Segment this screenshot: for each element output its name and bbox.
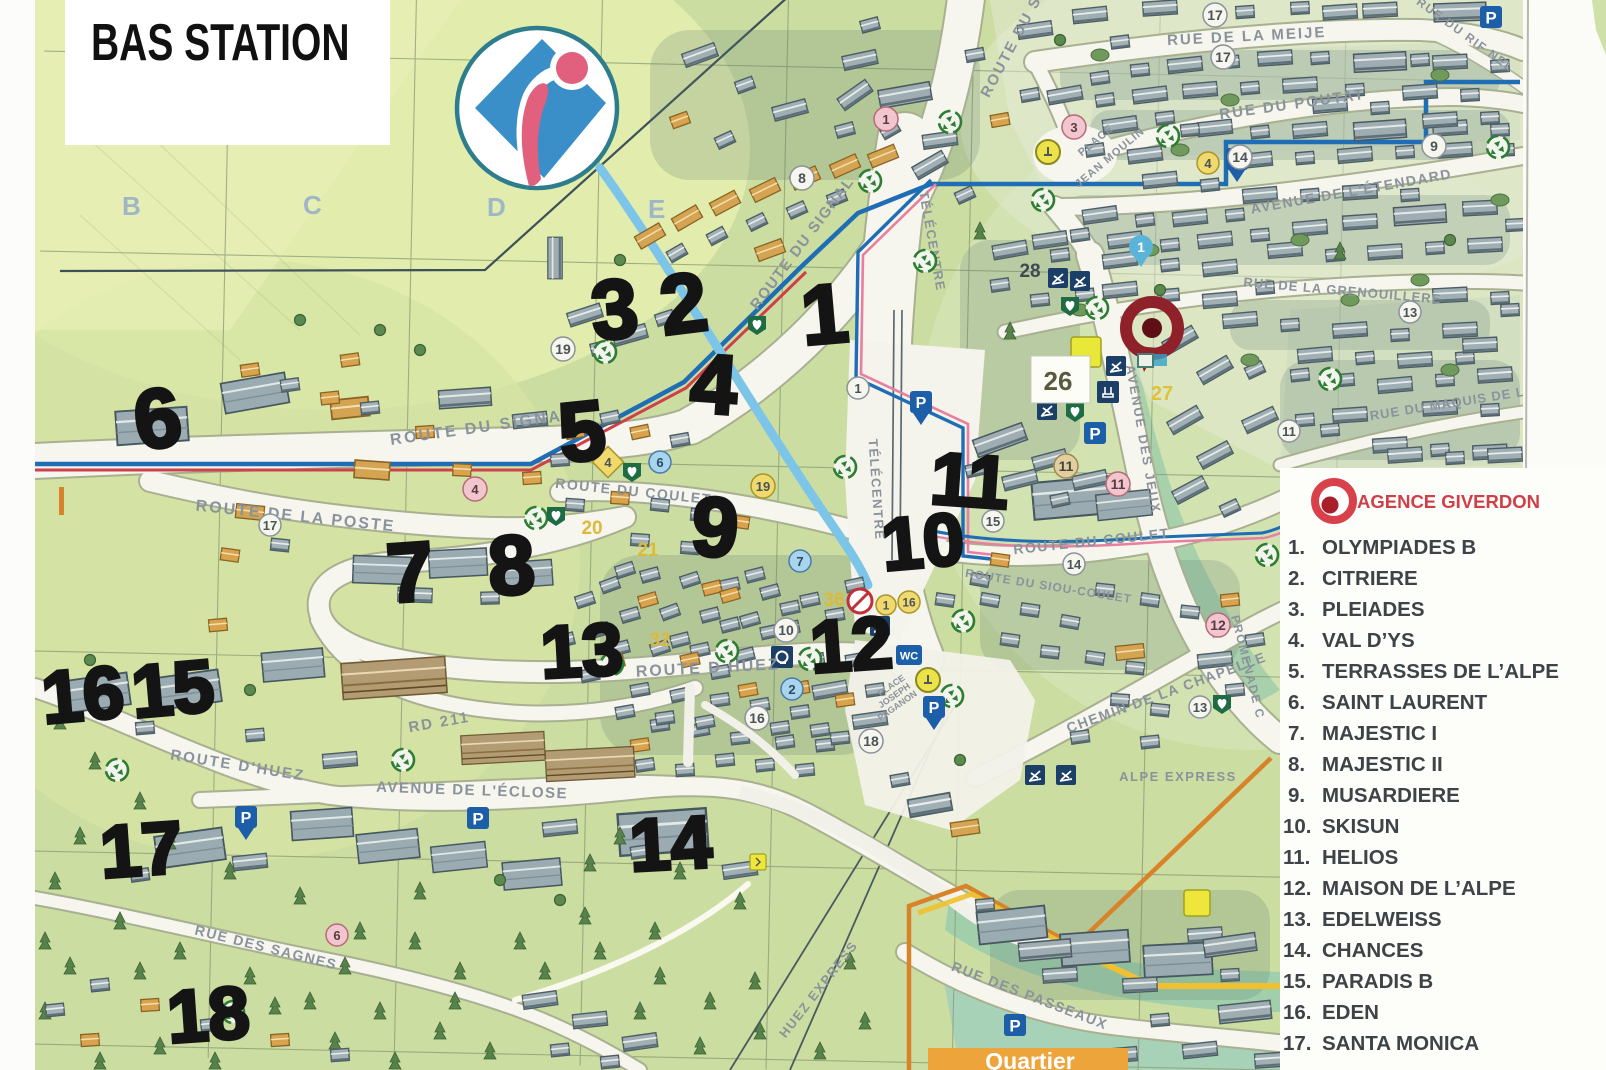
svg-text:AGENCE GIVERDON: AGENCE GIVERDON [1357, 491, 1540, 512]
svg-text:7: 7 [383, 524, 436, 621]
svg-text:4: 4 [1204, 156, 1212, 171]
svg-text:19: 19 [555, 341, 571, 357]
svg-text:3: 3 [587, 260, 642, 358]
svg-text:11: 11 [1282, 424, 1296, 439]
svg-text:8.: 8. [1288, 753, 1305, 776]
svg-text:PARADIS B: PARADIS B [1322, 970, 1433, 993]
svg-text:3: 3 [1070, 120, 1077, 135]
svg-text:1: 1 [797, 265, 852, 363]
svg-text:7: 7 [796, 554, 803, 569]
svg-text:VAL D’YS: VAL D’YS [1322, 629, 1415, 652]
svg-text:14: 14 [627, 800, 714, 887]
svg-text:19: 19 [756, 479, 770, 494]
svg-text:16.: 16. [1283, 1001, 1312, 1024]
svg-text:11: 11 [928, 436, 1012, 524]
svg-text:21: 21 [637, 540, 659, 561]
svg-text:C: C [303, 190, 322, 220]
svg-text:17: 17 [97, 805, 185, 894]
svg-text:1: 1 [1137, 239, 1145, 255]
svg-text:8: 8 [486, 517, 538, 613]
svg-text:CHANCES: CHANCES [1322, 939, 1423, 962]
svg-text:14: 14 [1232, 149, 1248, 165]
svg-text:18: 18 [863, 733, 879, 749]
svg-text:17: 17 [263, 518, 277, 533]
svg-text:MAISON DE L’ALPE: MAISON DE L’ALPE [1322, 877, 1516, 900]
svg-text:13: 13 [1403, 305, 1417, 320]
svg-text:14.: 14. [1283, 939, 1312, 962]
svg-text:14: 14 [1067, 557, 1082, 572]
svg-text:32: 32 [649, 630, 670, 651]
svg-text:15.: 15. [1283, 970, 1312, 993]
svg-text:OLYMPIADES B: OLYMPIADES B [1322, 536, 1476, 559]
svg-text:6: 6 [656, 455, 663, 470]
svg-text:WC: WC [900, 651, 918, 663]
svg-text:12: 12 [1210, 617, 1226, 633]
svg-text:11.: 11. [1283, 846, 1310, 869]
svg-text:2.: 2. [1288, 567, 1305, 590]
svg-text:18: 18 [164, 970, 252, 1059]
svg-text:HELIOS: HELIOS [1322, 846, 1398, 869]
svg-text:SANTA MONICA: SANTA MONICA [1322, 1032, 1479, 1055]
svg-text:ALPE EXPRESS: ALPE EXPRESS [1119, 769, 1237, 784]
svg-text:12.: 12. [1283, 877, 1312, 900]
svg-text:13: 13 [538, 607, 625, 694]
svg-text:10: 10 [778, 622, 794, 638]
svg-text:20: 20 [581, 518, 602, 539]
svg-text:4: 4 [687, 336, 740, 433]
svg-text:9.: 9. [1288, 784, 1305, 807]
svg-text:5: 5 [554, 382, 610, 480]
svg-text:5.: 5. [1288, 660, 1305, 683]
svg-text:D: D [487, 192, 506, 222]
svg-text:MAJESTIC I: MAJESTIC I [1322, 722, 1437, 745]
svg-text:17.: 17. [1283, 1032, 1312, 1055]
svg-text:SKISUN: SKISUN [1322, 815, 1399, 838]
svg-text:CITRIERE: CITRIERE [1322, 567, 1418, 590]
svg-text:4: 4 [471, 482, 479, 497]
svg-text:TERRASSES DE L’ALPE: TERRASSES DE L’ALPE [1322, 660, 1559, 683]
svg-text:13: 13 [1193, 700, 1207, 715]
svg-text:16: 16 [902, 596, 916, 610]
svg-text:6: 6 [333, 928, 340, 943]
svg-text:15: 15 [128, 644, 217, 734]
svg-text:6.: 6. [1288, 691, 1305, 714]
svg-text:11: 11 [1059, 458, 1074, 474]
svg-text:16: 16 [749, 710, 765, 726]
svg-text:EDELWEISS: EDELWEISS [1322, 908, 1442, 931]
svg-text:1.: 1. [1288, 536, 1305, 559]
svg-text:EDEN: EDEN [1322, 1001, 1379, 1024]
svg-text:8: 8 [798, 170, 806, 186]
svg-text:PLEIADES: PLEIADES [1322, 598, 1425, 621]
svg-text:17: 17 [1215, 49, 1231, 65]
svg-text:B: B [122, 191, 141, 221]
svg-text:MUSARDIERE: MUSARDIERE [1322, 784, 1460, 807]
svg-text:1: 1 [854, 381, 861, 396]
svg-text:11: 11 [1111, 476, 1126, 492]
svg-text:9: 9 [1430, 138, 1438, 154]
svg-text:Quartier: Quartier [985, 1048, 1075, 1070]
svg-text:28: 28 [1019, 261, 1040, 282]
svg-text:7.: 7. [1288, 722, 1305, 745]
svg-text:4.: 4. [1288, 629, 1305, 652]
svg-text:BAS STATION: BAS STATION [91, 12, 349, 71]
svg-text:27: 27 [1151, 383, 1173, 405]
svg-text:26: 26 [1044, 366, 1073, 396]
svg-text:2: 2 [788, 682, 795, 697]
svg-text:16: 16 [38, 650, 127, 740]
svg-text:3.: 3. [1288, 598, 1305, 621]
svg-text:SAINT LAURENT: SAINT LAURENT [1322, 691, 1488, 714]
svg-text:MAJESTIC II: MAJESTIC II [1322, 753, 1443, 776]
svg-text:12: 12 [807, 600, 895, 689]
svg-text:17: 17 [1207, 7, 1223, 23]
svg-text:1: 1 [882, 112, 889, 127]
svg-text:9: 9 [688, 479, 741, 576]
svg-text:E: E [648, 194, 665, 224]
svg-text:13.: 13. [1283, 908, 1312, 931]
svg-text:10.: 10. [1283, 815, 1312, 838]
